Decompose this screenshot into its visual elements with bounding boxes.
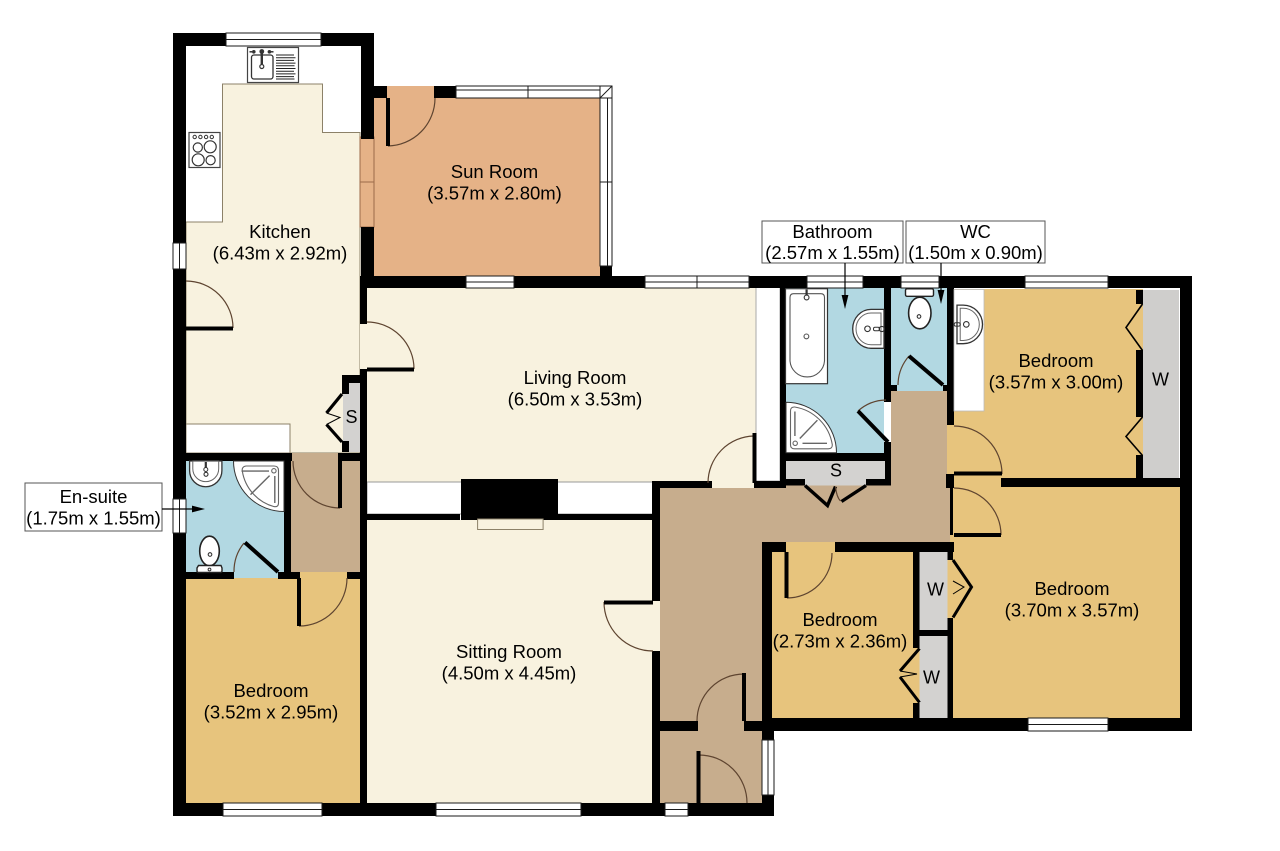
svg-text:(4.50m x 4.45m): (4.50m x 4.45m) xyxy=(442,663,577,684)
svg-text:Bedroom: Bedroom xyxy=(1018,350,1093,371)
svg-text:(1.75m x 1.55m): (1.75m x 1.55m) xyxy=(26,508,161,529)
svg-text:Bedroom: Bedroom xyxy=(802,609,877,630)
svg-text:W: W xyxy=(1152,370,1169,390)
svg-text:S: S xyxy=(830,461,842,481)
svg-text:(3.52m x 2.95m): (3.52m x 2.95m) xyxy=(204,702,339,723)
svg-text:(3.70m x 3.57m): (3.70m x 3.57m) xyxy=(1005,600,1140,621)
svg-text:(3.57m x 2.80m): (3.57m x 2.80m) xyxy=(427,183,562,204)
svg-text:Living Room: Living Room xyxy=(524,367,627,388)
svg-text:(2.73m x 2.36m): (2.73m x 2.36m) xyxy=(773,631,908,652)
svg-text:Sun Room: Sun Room xyxy=(451,161,538,182)
svg-text:W: W xyxy=(927,580,944,600)
svg-text:(3.57m x 3.00m): (3.57m x 3.00m) xyxy=(989,372,1124,393)
svg-text:(2.57m x 1.55m): (2.57m x 1.55m) xyxy=(765,242,900,263)
svg-text:S: S xyxy=(345,407,357,427)
svg-text:Bedroom: Bedroom xyxy=(1034,578,1109,599)
svg-text:(6.50m x 3.53m): (6.50m x 3.53m) xyxy=(508,389,643,410)
svg-text:Bathroom: Bathroom xyxy=(792,221,872,242)
svg-text:(1.50m x 0.90m): (1.50m x 0.90m) xyxy=(908,242,1043,263)
svg-text:Bedroom: Bedroom xyxy=(233,680,308,701)
svg-text:Kitchen: Kitchen xyxy=(249,221,311,242)
svg-text:WC: WC xyxy=(960,221,991,242)
svg-text:Sitting Room: Sitting Room xyxy=(456,641,562,662)
svg-text:W: W xyxy=(923,668,940,688)
svg-text:En-suite: En-suite xyxy=(60,486,128,507)
svg-text:(6.43m x 2.92m): (6.43m x 2.92m) xyxy=(213,243,348,264)
